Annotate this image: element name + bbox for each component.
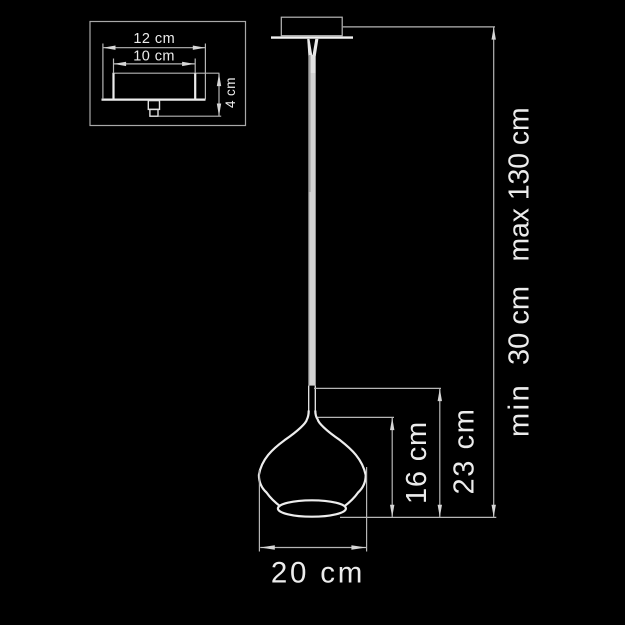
svg-text:20 cm: 20 cm: [271, 556, 365, 589]
svg-text:30 cm: 30 cm: [504, 286, 536, 365]
svg-text:max 130 cm: max 130 cm: [503, 107, 535, 261]
svg-text:12 cm: 12 cm: [133, 31, 175, 47]
svg-text:4 cm: 4 cm: [223, 77, 238, 108]
svg-text:10 cm: 10 cm: [133, 49, 175, 65]
svg-text:min: min: [504, 383, 536, 437]
svg-text:23 cm: 23 cm: [449, 408, 481, 495]
svg-text:16 cm: 16 cm: [401, 421, 433, 504]
